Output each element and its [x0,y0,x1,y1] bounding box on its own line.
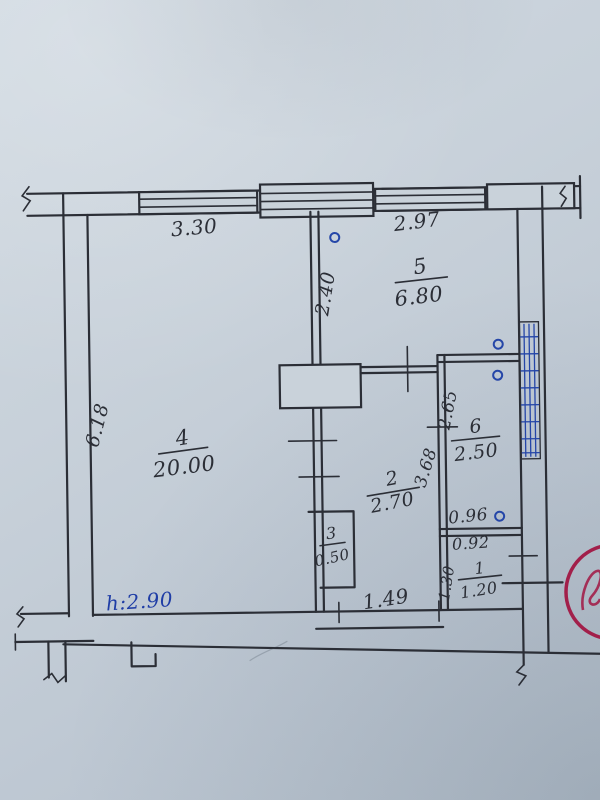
partition-hall-kitchen [360,346,438,392]
dim-left-side: 6.18 [81,401,113,449]
dim-hallway-depth: 3.68 [411,446,442,490]
room4-number: 4 [173,425,191,451]
wall-end-cap [580,176,581,218]
window-sill-block [487,183,574,209]
room6-area: 2.50 [452,439,500,466]
window-center [260,183,373,218]
bottom-wall [15,599,600,683]
door-circle-icon [330,233,339,242]
outer-building-line [63,637,600,662]
duct-hatch-vertical [524,324,536,457]
floor-plan-drawing: 5 6.80 4 20.00 6 2.50 2 2.70 3 0.50 1 1.… [0,0,600,800]
left-wall [63,193,93,616]
wall-break-mark [44,673,66,682]
wall-segment [63,193,69,616]
room2-area: 2.70 [368,488,417,518]
room1-area: 1.20 [459,578,499,603]
wall-segment [437,354,519,362]
paper-scratch [249,641,287,661]
dim-bathroom-depth: 1.30 [435,564,458,602]
wall-break-mark [22,187,30,211]
door-circle-icon [495,512,504,521]
room5-area: 6.80 [393,282,444,312]
wall-segment [316,627,443,629]
dim-window-left: 3.30 [170,214,218,242]
duct-hatch-strip [519,322,540,459]
window-frame [139,191,257,215]
wall-segment [15,641,93,642]
red-stamp [566,545,600,639]
wall-break-mark [517,665,526,685]
right-wall [510,187,549,685]
ceiling-height-note: h:2.90 [105,587,174,615]
stair-wall-stub [48,641,66,681]
room5-number: 5 [411,253,428,279]
room3-area: 0.50 [313,545,352,570]
dim-room6-width: 0.96 [447,505,489,529]
builtin-closet [280,364,362,408]
dim-room5-depth: 2.40 [311,270,340,318]
room3-number: 3 [325,523,338,543]
window-left [139,191,257,215]
wall-segment [361,366,438,373]
room4-area: 20.00 [151,451,217,482]
dim-bathroom-width: 0.92 [451,532,490,553]
door-circle-icon [493,371,502,380]
stamp-signature [582,571,600,610]
dim-window-right: 2.97 [391,207,441,236]
wall-break-mark [17,607,24,627]
room2-number: 2 [383,467,400,491]
room1-number: 1 [473,558,486,578]
door-circle-icon [494,340,503,349]
stamp-leader-line [503,582,563,583]
dimension-tick [407,346,408,391]
floor-plan-photo: 5 6.80 4 20.00 6 2.50 2 2.70 3 0.50 1 1.… [0,0,600,800]
wall-segment [21,613,69,614]
room6-number: 6 [468,415,483,438]
top-wall [22,176,581,226]
